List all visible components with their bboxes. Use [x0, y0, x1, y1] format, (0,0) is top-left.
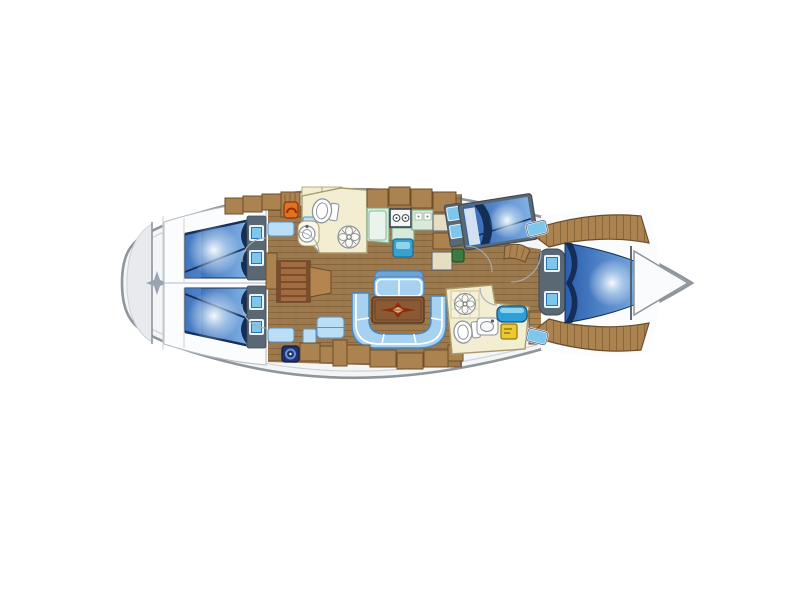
berth-pillow: [544, 291, 560, 308]
locker-box: [333, 340, 347, 366]
cabin-shelf: [268, 222, 294, 236]
sink-icon: [477, 318, 498, 335]
step-rail: [277, 261, 281, 302]
seat-blue: [497, 306, 527, 322]
locker-yellow: [501, 324, 517, 339]
locker-box: [397, 353, 423, 369]
locker-green: [452, 249, 464, 262]
berth-pillow: [544, 255, 560, 272]
shower-drain-icon: [455, 294, 476, 315]
berth-highlight: [188, 290, 240, 342]
locker-box: [424, 350, 448, 367]
locker-box: [347, 345, 370, 364]
shower-fan-icon: [338, 226, 360, 248]
locker-box: [300, 343, 320, 361]
salon-table: [372, 297, 424, 323]
v-berth-cabin: [526, 209, 688, 356]
nav-seat: [432, 252, 452, 270]
aft-head: [298, 188, 367, 253]
fridge-top: [369, 211, 386, 240]
bilge-fitting-icon: [282, 346, 299, 362]
berth-highlight: [588, 259, 636, 307]
stove-icon: [390, 209, 411, 227]
locker-box: [262, 194, 281, 210]
galley-sink-icon: [393, 239, 413, 257]
yacht-floor-plan: [0, 0, 800, 600]
shower-tray: [451, 291, 479, 318]
hatch-window: [249, 294, 264, 310]
step-rail: [306, 261, 310, 302]
salon-bench: [374, 271, 424, 298]
locker-box: [225, 198, 243, 214]
side-bench: [317, 317, 344, 338]
locker-box: [243, 196, 262, 212]
cabin-shelf: [268, 328, 294, 342]
page: [0, 0, 800, 600]
locker-box: [411, 189, 432, 208]
anchor-locker: [634, 251, 688, 315]
locker-box: [320, 346, 333, 363]
counter-burners: [412, 210, 433, 230]
wardrobe-block: [266, 253, 277, 289]
berth-highlight: [188, 224, 240, 276]
locker-box: [370, 350, 396, 367]
hatch-window: [249, 319, 264, 335]
locker-box: [389, 187, 410, 205]
life-ring-icon: [284, 202, 298, 218]
step-landing: [310, 267, 331, 297]
locker-box: [367, 189, 388, 208]
galley-counter: [392, 228, 414, 240]
hatch-window: [249, 250, 264, 266]
